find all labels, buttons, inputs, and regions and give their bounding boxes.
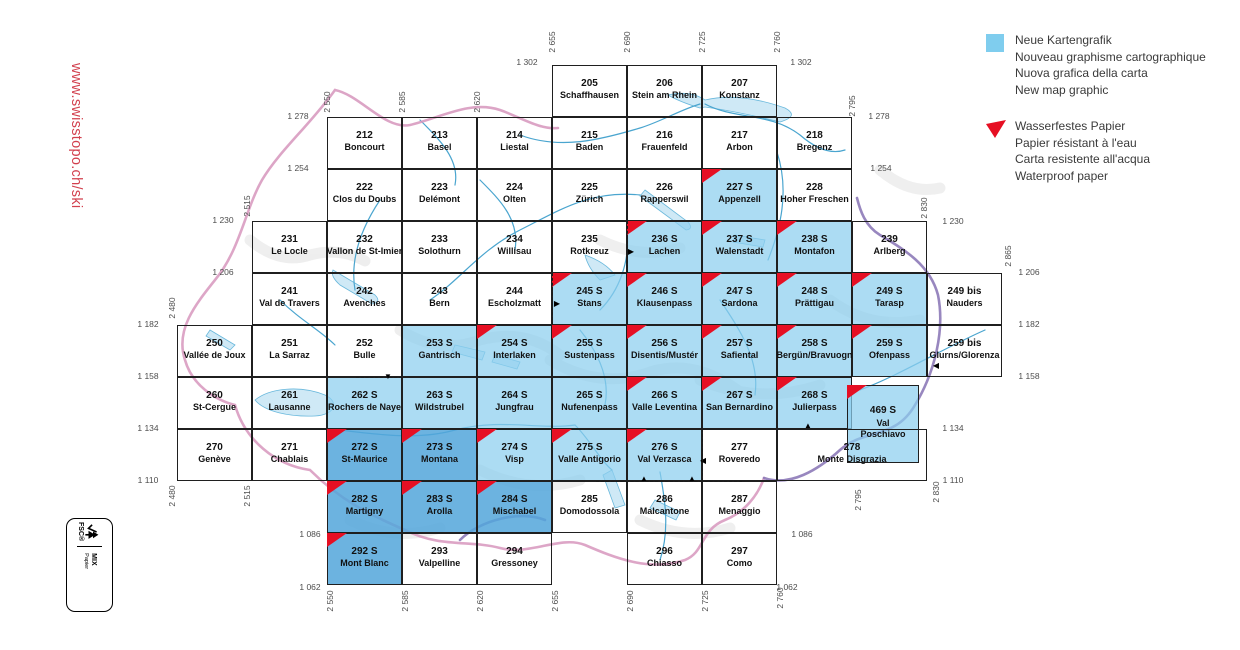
sheet-label: 214Liestal <box>500 130 529 152</box>
sheet-label: 241Val de Travers <box>259 286 320 308</box>
grid-coordinate-label: 2 690 <box>625 590 635 611</box>
sheet-label: 284 SMischabel <box>493 494 537 516</box>
sheet-label: 225Zürich <box>576 182 604 204</box>
map-sheet-266-S[interactable]: 266 SValle Leventina <box>627 377 702 429</box>
grid-coordinate-label: 2 480 <box>167 485 177 506</box>
sheet-label: 253 SGantrisch <box>418 338 460 360</box>
map-sheet-275-S[interactable]: 275 SValle Antigorio <box>552 429 627 481</box>
sheet-label: 224Olten <box>503 182 526 204</box>
sheet-label: 258 SBergün/Bravuogn <box>777 338 853 360</box>
sheet-label: 274 SVisp <box>501 442 527 464</box>
map-sheet-255-S[interactable]: 255 SSustenpass <box>552 325 627 377</box>
grid-coordinate-label: 1 182 <box>137 319 158 329</box>
grid-coordinate-label: 2 795 <box>853 489 863 510</box>
map-sheet-261[interactable]: 261Lausanne <box>252 377 327 429</box>
map-sheet-215[interactable]: 215Baden <box>552 117 627 169</box>
waterproof-corner-icon <box>552 273 572 287</box>
map-sheet-238-S[interactable]: 238 SMontafon <box>777 221 852 273</box>
map-marker-icon: ▲ <box>804 422 812 430</box>
map-sheet-244[interactable]: 244Escholzmatt <box>477 273 552 325</box>
sheet-label: 207Konstanz <box>719 78 760 100</box>
sheet-label: 228Hoher Freschen <box>780 182 849 204</box>
fsc-label: FSC® MIX Papier <box>66 518 113 612</box>
grid-coordinate-label: 2 725 <box>700 590 710 611</box>
sheet-label: 232Vallon de St-Imier <box>327 234 403 256</box>
sheet-label: 264 SJungfrau <box>495 390 534 412</box>
map-sheet-213[interactable]: 213Basel <box>402 117 477 169</box>
legend-line-de: Neue Kartengrafik <box>1015 32 1206 49</box>
map-sheet-252[interactable]: 252Bulle <box>327 325 402 377</box>
sheet-label: 217Arbon <box>726 130 753 152</box>
sheet-label: 231Le Locle <box>271 234 308 256</box>
sheet-label: 246 SKlausenpass <box>637 286 693 308</box>
sheet-label: 239Arlberg <box>873 234 905 256</box>
sheet-label: 296Chiasso <box>647 546 682 568</box>
sheet-label: 276 SVal Verzasca <box>637 442 691 464</box>
dashed-boundary <box>596 481 742 482</box>
grid-coordinate-label: 1 230 <box>212 215 233 225</box>
map-sheet-247-S[interactable]: 247 SSardona <box>702 273 777 325</box>
waterproof-corner-icon <box>852 273 872 287</box>
map-sheet-250[interactable]: 250Vallée de Joux <box>177 325 252 377</box>
map-sheet-212[interactable]: 212Boncourt <box>327 117 402 169</box>
sheet-label: 278Monte Disgrazia <box>817 442 886 464</box>
sheet-label: 243Bern <box>429 286 450 308</box>
map-sheet-265-S[interactable]: 265 SNufenenpass <box>552 377 627 429</box>
sheet-label: 227 SAppenzell <box>718 182 761 204</box>
map-sheet-235[interactable]: 235Rotkreuz <box>552 221 627 273</box>
map-sheet-273-S[interactable]: 273 SMontana <box>402 429 477 481</box>
map-sheet-205[interactable]: 205Schaffhausen <box>552 65 627 117</box>
sheet-label: 262 SRochers de Naye <box>328 390 401 412</box>
grid-coordinate-label: 1 230 <box>942 216 963 226</box>
map-sheet-227-S[interactable]: 227 SAppenzell <box>702 169 777 221</box>
grid-coordinate-label: 2 690 <box>622 31 632 52</box>
sheet-label: 255 SSustenpass <box>564 338 615 360</box>
new-graphic-swatch-icon <box>986 34 1004 52</box>
map-sheet-206[interactable]: 206Stein am Rhein <box>627 65 702 117</box>
map-sheet-294[interactable]: 294Gressoney <box>477 533 552 585</box>
sheet-label: 245 SStans <box>576 286 602 308</box>
sheet-label: 292 SMont Blanc <box>340 546 389 568</box>
grid-coordinate-label: 1 206 <box>212 267 233 277</box>
map-sheet-214[interactable]: 214Liestal <box>477 117 552 169</box>
map-sheet-297[interactable]: 297Como <box>702 533 777 585</box>
sheet-label: 265 SNufenenpass <box>561 390 618 412</box>
grid-coordinate-label: 2 515 <box>242 195 252 216</box>
map-sheet-248-S[interactable]: 248 SPrättigau <box>777 273 852 325</box>
waterproof-corner-icon <box>477 429 497 443</box>
legend: Neue Kartengrafik Nouveau graphisme cart… <box>986 32 1216 184</box>
map-sheet-259-S[interactable]: 259 SOfenpass <box>852 325 927 377</box>
grid-coordinate-label: 2 620 <box>475 590 485 611</box>
sheet-label: 256 SDisentis/Mustér <box>631 338 698 360</box>
legend-line-en: Waterproof paper <box>1015 168 1150 185</box>
sheet-label: 249 STarasp <box>875 286 904 308</box>
map-sheet-249-S[interactable]: 249 STarasp <box>852 273 927 325</box>
dashed-boundary <box>356 377 402 378</box>
map-sheet-241[interactable]: 241Val de Travers <box>252 273 327 325</box>
sheet-label: 216Frauenfeld <box>641 130 687 152</box>
map-sheet-217[interactable]: 217Arbon <box>702 117 777 169</box>
map-sheet-246-S[interactable]: 246 SKlausenpass <box>627 273 702 325</box>
sheet-label: 263 SWildstrubel <box>415 390 464 412</box>
map-sheet-258-S[interactable]: 258 SBergün/Bravuogn <box>777 325 852 377</box>
waterproof-corner-icon <box>402 429 422 443</box>
map-marker-icon: ◀ <box>933 362 939 370</box>
fsc-tree-icon: FSC® <box>77 522 102 547</box>
map-sheet-268-S[interactable]: 268 SJulierpass <box>777 377 852 429</box>
map-sheet-239[interactable]: 239Arlberg <box>852 221 927 273</box>
sheet-label: 268 SJulierpass <box>792 390 837 412</box>
map-sheet-232[interactable]: 232Vallon de St-Imier <box>327 221 402 273</box>
sheet-label: 251La Sarraz <box>269 338 310 360</box>
map-sheet-236-S[interactable]: 236 SLachen <box>627 221 702 273</box>
grid-coordinate-label: 1 086 <box>299 529 320 539</box>
dashed-boundary <box>627 221 628 273</box>
grid-coordinate-label: 1 062 <box>776 582 797 592</box>
waterproof-swatch-icon <box>986 120 1006 138</box>
grid-coordinate-label: 1 254 <box>870 163 891 173</box>
map-sheet-237-S[interactable]: 237 SWalenstadt <box>702 221 777 273</box>
waterproof-corner-icon <box>702 325 722 339</box>
sheet-label: 273 SMontana <box>421 442 458 464</box>
grid-coordinate-label: 2 725 <box>697 31 707 52</box>
map-sheet-242[interactable]: 242Avenches <box>327 273 402 325</box>
map-sheet-224[interactable]: 224Olten <box>477 169 552 221</box>
sheet-label: 252Bulle <box>353 338 375 360</box>
waterproof-corner-icon <box>627 221 647 235</box>
sheet-label: 226Rapperswil <box>640 182 688 204</box>
sheet-label: 261Lausanne <box>268 390 310 412</box>
sheet-label: 271Chablais <box>271 442 309 464</box>
grid-coordinate-label: 1 134 <box>137 423 158 433</box>
waterproof-corner-icon <box>702 273 722 287</box>
grid-coordinate-label: 1 086 <box>791 529 812 539</box>
grid-coordinate-label: 2 795 <box>847 95 857 116</box>
sheet-label: 259 SOfenpass <box>869 338 910 360</box>
dashed-boundary <box>702 429 703 481</box>
grid-coordinate-label: 1 062 <box>299 582 320 592</box>
legend-waterproof: Wasserfestes Papier Papier résistant à l… <box>986 118 1216 184</box>
map-sheet-253-S[interactable]: 253 SGantrisch <box>402 325 477 377</box>
sheet-label: 254 SInterlaken <box>493 338 536 360</box>
map-sheet-285[interactable]: 285Domodossola <box>552 481 627 533</box>
grid-coordinate-label: 1 302 <box>790 57 811 67</box>
map-sheet-292-S[interactable]: 292 SMont Blanc <box>327 533 402 585</box>
map-sheet-207[interactable]: 207Konstanz <box>702 65 777 117</box>
map-sheet-257-S[interactable]: 257 SSafiental <box>702 325 777 377</box>
grid-coordinate-label: 2 655 <box>547 31 557 52</box>
map-sheet-263-S[interactable]: 263 SWildstrubel <box>402 377 477 429</box>
waterproof-corner-icon <box>402 481 422 495</box>
grid-coordinate-label: 1 278 <box>287 111 308 121</box>
map-sheet-223[interactable]: 223Delémont <box>402 169 477 221</box>
map-marker-icon: ◀ <box>700 457 706 465</box>
sheet-label: 213Basel <box>427 130 451 152</box>
map-marker-icon: ▶ <box>554 300 560 308</box>
sheet-label: 285Domodossola <box>560 494 620 516</box>
sheet-label: 218Bregenz <box>797 130 833 152</box>
grid-coordinate-label: 2 550 <box>325 590 335 611</box>
grid-coordinate-label: 2 830 <box>931 481 941 502</box>
map-sheet-296[interactable]: 296Chiasso <box>627 533 702 585</box>
legend-line-de: Wasserfestes Papier <box>1015 118 1150 135</box>
sheet-label: 272 SSt-Maurice <box>341 442 387 464</box>
sheet-label: 297Como <box>727 546 753 568</box>
waterproof-corner-icon <box>327 481 347 495</box>
grid-coordinate-label: 2 655 <box>550 590 560 611</box>
grid-coordinate-label: 2 550 <box>322 91 332 112</box>
sheet-label: 286Malcantone <box>640 494 690 516</box>
grid-coordinate-label: 1 254 <box>287 163 308 173</box>
dashed-boundary <box>552 273 553 325</box>
map-sheet-226[interactable]: 226Rapperswil <box>627 169 702 221</box>
sheet-label: 249 bisNauders <box>946 286 982 308</box>
map-sheet-264-S[interactable]: 264 SJungfrau <box>477 377 552 429</box>
map-sheet-267-S[interactable]: 267 SSan Bernardino <box>702 377 777 429</box>
sheet-label: 270Genève <box>198 442 231 464</box>
map-sheet-216[interactable]: 216Frauenfeld <box>627 117 702 169</box>
grid-coordinate-label: 2 760 <box>772 31 782 52</box>
sheet-label: 259 bisGlurns/Glorenza <box>929 338 999 360</box>
map-marker-icon: ▶ <box>628 248 634 256</box>
map-sheet-293[interactable]: 293Valpelline <box>402 533 477 585</box>
map-sheet-256-S[interactable]: 256 SDisentis/Mustér <box>627 325 702 377</box>
grid-coordinate-label: 1 206 <box>1018 267 1039 277</box>
sheet-label: 293Valpelline <box>419 546 461 568</box>
map-sheet-245-S[interactable]: 245 SStans <box>552 273 627 325</box>
legend-line-fr: Papier résistant à l'eau <box>1015 135 1150 152</box>
legend-line-fr: Nouveau graphisme cartographique <box>1015 49 1206 66</box>
sheet-label: 234Willisau <box>498 234 532 256</box>
map-sheet-284-S[interactable]: 284 SMischabel <box>477 481 552 533</box>
sheet-label: 275 SValle Antigorio <box>558 442 621 464</box>
grid-coordinate-label: 2 620 <box>472 91 482 112</box>
map-sheet-231[interactable]: 231Le Locle <box>252 221 327 273</box>
map-sheet-233[interactable]: 233Solothurn <box>402 221 477 273</box>
map-sheet-243[interactable]: 243Bern <box>402 273 477 325</box>
sheet-label: 238 SMontafon <box>794 234 835 256</box>
map-sheet-228[interactable]: 228Hoher Freschen <box>777 169 852 221</box>
map-sheet-270[interactable]: 270Genève <box>177 429 252 481</box>
sheet-label: 206Stein am Rhein <box>632 78 697 100</box>
sheet-label: 244Escholzmatt <box>488 286 541 308</box>
grid-coordinate-label: 1 110 <box>138 475 159 485</box>
map-sheet-225[interactable]: 225Zürich <box>552 169 627 221</box>
map-sheet-254-S[interactable]: 254 SInterlaken <box>477 325 552 377</box>
sheet-label: 250Vallée de Joux <box>183 338 245 360</box>
sheet-label: 223Delémont <box>419 182 460 204</box>
legend-line-en: New map graphic <box>1015 82 1206 99</box>
grid-coordinate-label: 1 158 <box>1018 371 1039 381</box>
sheet-label: 282 SMartigny <box>346 494 384 516</box>
grid-coordinate-label: 1 134 <box>942 423 963 433</box>
map-sheet-218[interactable]: 218Bregenz <box>777 117 852 169</box>
grid-coordinate-label: 2 480 <box>167 297 177 318</box>
sheet-label: 233Solothurn <box>418 234 461 256</box>
map-sheet-234[interactable]: 234Willisau <box>477 221 552 273</box>
map-sheet-274-S[interactable]: 274 SVisp <box>477 429 552 481</box>
grid-coordinate-label: 2 585 <box>397 91 407 112</box>
legend-line-it: Nuova grafica della carta <box>1015 65 1206 82</box>
legend-new-graphic: Neue Kartengrafik Nouveau graphisme cart… <box>986 32 1216 98</box>
sheet-label: 222Clos du Doubs <box>333 182 397 204</box>
grid-coordinate-label: 1 278 <box>868 111 889 121</box>
sheet-label: 215Baden <box>576 130 604 152</box>
map-sheet-260[interactable]: 260St-Cergue <box>177 377 252 429</box>
sheet-label: 257 SSafiental <box>721 338 759 360</box>
sheet-label: 283 SArolla <box>426 494 452 516</box>
grid-coordinate-label: 2 865 <box>1003 245 1013 266</box>
map-sheet-272-S[interactable]: 272 SSt-Maurice <box>327 429 402 481</box>
map-sheet-287[interactable]: 287Menaggio <box>702 481 777 533</box>
map-sheet-278[interactable]: 278Monte Disgrazia <box>777 429 927 481</box>
sheet-label: 260St-Cergue <box>193 390 236 412</box>
map-sheet-282-S[interactable]: 282 SMartigny <box>327 481 402 533</box>
grid-coordinate-label: 1 158 <box>137 371 158 381</box>
map-sheet-277[interactable]: 277Roveredo <box>702 429 777 481</box>
grid-coordinate-label: 2 515 <box>242 485 252 506</box>
sheet-label: 242Avenches <box>343 286 385 308</box>
legend-line-it: Carta resistente all'acqua <box>1015 151 1150 168</box>
sheet-label: 277Roveredo <box>719 442 761 464</box>
sheet-label: 294Gressoney <box>491 546 538 568</box>
sheet-label: 267 SSan Bernardino <box>706 390 773 412</box>
sheet-label: 266 SValle Leventina <box>632 390 697 412</box>
grid-coordinate-label: 1 110 <box>943 475 964 485</box>
grid-coordinate-label: 2 585 <box>400 590 410 611</box>
grid-coordinate-label: 2 830 <box>919 197 929 218</box>
map-sheet-262-S[interactable]: 262 SRochers de Naye <box>327 377 402 429</box>
map-sheet-283-S[interactable]: 283 SArolla <box>402 481 477 533</box>
grid-coordinate-label: 1 302 <box>516 57 537 67</box>
swisstopo-url[interactable]: www.swisstopo.ch/ski <box>68 63 84 208</box>
map-sheet-249-bis[interactable]: 249 bisNauders <box>927 273 1002 325</box>
map-sheet-222[interactable]: 222Clos du Doubs <box>327 169 402 221</box>
sheet-label: 235Rotkreuz <box>570 234 609 256</box>
map-sheet-271[interactable]: 271Chablais <box>252 429 327 481</box>
sheet-label: 205Schaffhausen <box>560 78 619 100</box>
waterproof-corner-icon <box>847 385 867 399</box>
sheet-label: 236 SLachen <box>649 234 681 256</box>
sheet-label: 247 SSardona <box>721 286 757 308</box>
grid-coordinate-label: 1 182 <box>1018 319 1039 329</box>
sheet-label: 287Menaggio <box>719 494 761 516</box>
sheet-label: 212Boncourt <box>345 130 385 152</box>
sheet-label: 248 SPrättigau <box>795 286 834 308</box>
map-sheet-251[interactable]: 251La Sarraz <box>252 325 327 377</box>
map-sheet-286[interactable]: 286Malcantone <box>627 481 702 533</box>
sheet-label: 237 SWalenstadt <box>716 234 764 256</box>
